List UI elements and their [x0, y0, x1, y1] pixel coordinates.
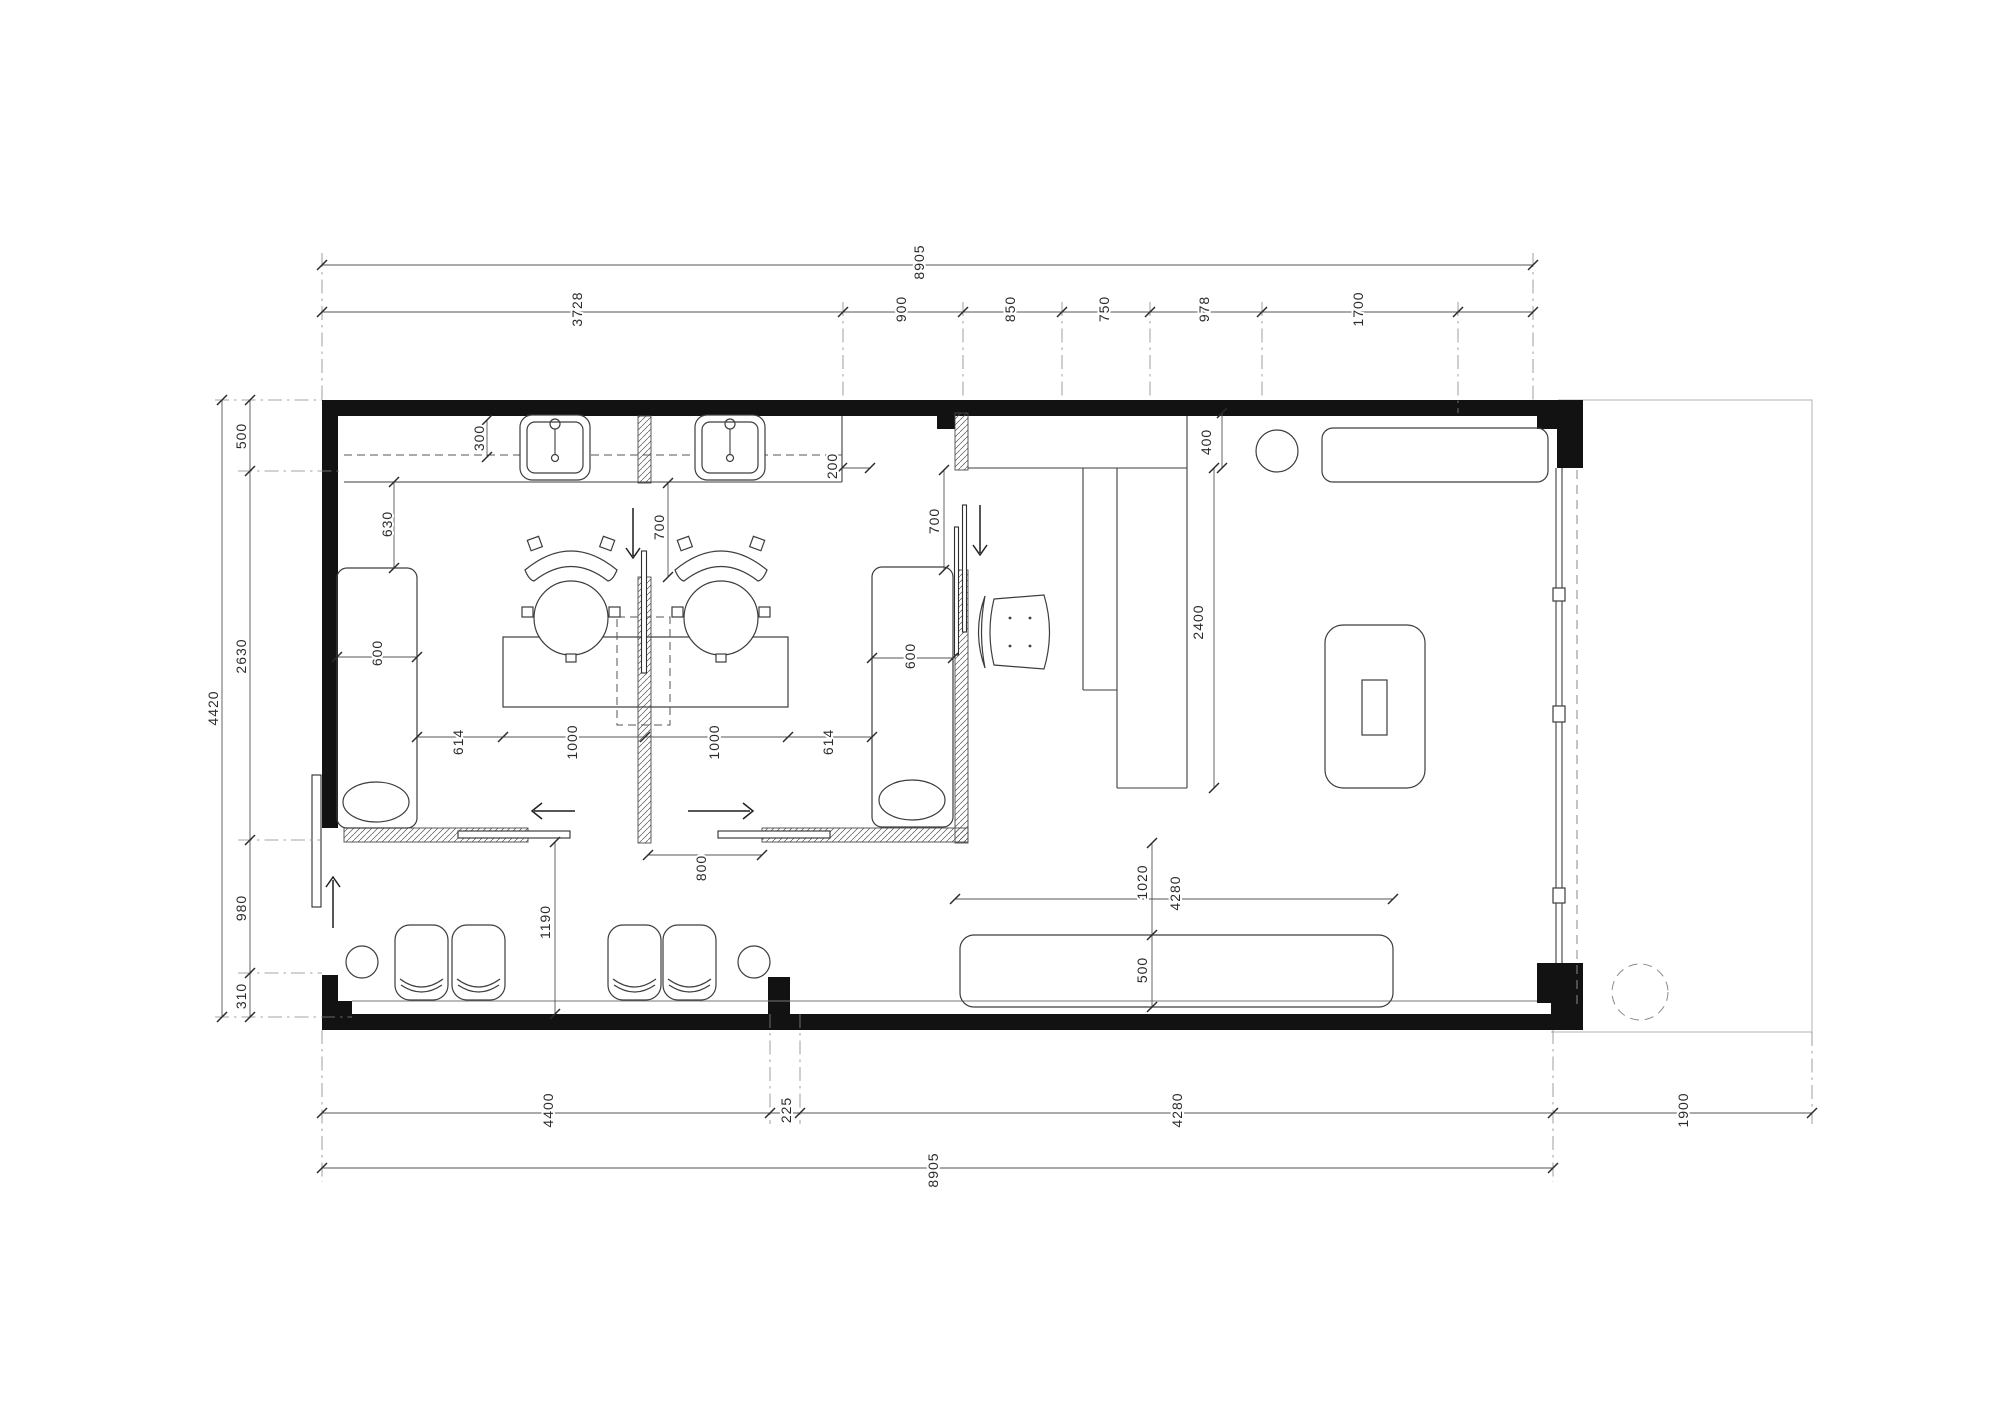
dim-label: 500 — [1134, 957, 1150, 983]
room2-south-arrow-icon — [688, 803, 753, 819]
dim-label: 300 — [471, 425, 487, 451]
entrance-arrow-icon — [326, 877, 340, 928]
treatment-bed-1 — [337, 568, 417, 828]
exterior-dashed-circle — [1612, 964, 1668, 1020]
dim-label: 614 — [820, 729, 836, 755]
bed-1-pillow — [343, 782, 409, 822]
sink-2 — [695, 415, 765, 480]
wall-bottom — [322, 1014, 1583, 1030]
room2-south-door — [718, 831, 830, 838]
glass-mullion — [1553, 706, 1565, 722]
dim-label: 850 — [1002, 296, 1018, 322]
exterior-terrace-outline — [1551, 400, 1812, 1032]
dim-label: 1700 — [1350, 291, 1366, 326]
partition-room2-right-top — [955, 413, 968, 470]
glass-wall — [1553, 468, 1577, 1008]
dim-label: 3728 — [569, 291, 585, 326]
dim-label: 1900 — [1675, 1092, 1691, 1127]
dim-label: 1190 — [537, 905, 553, 939]
dim-label: 4400 — [540, 1092, 556, 1127]
dim-label: 980 — [233, 895, 249, 921]
room1-south-arrow-icon — [532, 803, 575, 819]
dim-label: 900 — [893, 296, 909, 322]
client-chair-1 — [522, 536, 620, 662]
wall-bottom-right-corner — [1551, 963, 1583, 1030]
room1-north-door — [642, 551, 647, 673]
dim-label: 1000 — [564, 724, 580, 759]
dim-label: 750 — [1096, 296, 1112, 322]
dim-label: 500 — [233, 423, 249, 449]
partition-room-divider-top — [638, 416, 651, 483]
glass-mullion — [1553, 588, 1565, 601]
bench — [960, 935, 1393, 1007]
dim-label: 225 — [778, 1097, 794, 1123]
dim-label: 630 — [379, 511, 395, 537]
drawing-sheet: 8905372890085075097817004420500263098031… — [0, 0, 2000, 1413]
side-table — [346, 946, 378, 978]
side-table — [738, 946, 770, 978]
bed-2-pillow — [879, 780, 945, 820]
dim-label: 2630 — [233, 638, 249, 673]
dim-label: 1020 — [1134, 864, 1150, 899]
wall-cabinet — [1322, 428, 1548, 482]
dim-label: 800 — [693, 855, 709, 881]
dim-label: 700 — [926, 508, 942, 534]
coffee-table-tray — [1362, 680, 1387, 735]
dim-label: 200 — [824, 453, 840, 479]
entrance-sliding-door — [312, 775, 321, 907]
dim-label: 600 — [902, 643, 918, 669]
office-chair — [979, 595, 1050, 669]
glass-mullion — [1553, 888, 1565, 903]
partitions — [344, 413, 968, 843]
dim-label: 4280 — [1169, 1092, 1185, 1127]
treatment-bed-2 — [872, 567, 953, 827]
dim-label: 4280 — [1167, 875, 1183, 910]
floor-plan: 8905372890085075097817004420500263098031… — [0, 0, 2000, 1413]
stool — [1256, 430, 1298, 472]
room1-south-door — [458, 831, 570, 838]
room1-door-arrow-icon — [626, 508, 640, 558]
wall-left — [322, 400, 338, 828]
waiting-chair — [452, 925, 505, 1000]
dim-label: 978 — [1196, 296, 1212, 322]
client-chair-2 — [672, 536, 770, 662]
reception-desk — [1083, 416, 1187, 788]
wall-top-right-corner — [1557, 400, 1583, 468]
dim-label: 4420 — [205, 690, 221, 725]
waiting-chair — [395, 925, 448, 1000]
dim-label: 614 — [450, 729, 466, 755]
waiting-chair — [608, 925, 661, 1000]
room2-north-door-leaf — [955, 527, 959, 655]
sink-1 — [520, 415, 590, 480]
waiting-chair — [663, 925, 716, 1000]
wall-top-right-step — [1537, 416, 1560, 429]
room2-north-door-leaf — [963, 505, 967, 632]
furniture — [337, 428, 1548, 1007]
room2-door-arrow-icon — [973, 505, 987, 555]
wall-pier — [937, 416, 955, 429]
wall-top — [322, 400, 1583, 416]
dim-label: 400 — [1198, 429, 1214, 455]
dim-label: 2400 — [1190, 604, 1206, 639]
wall-column-stub — [768, 977, 790, 1014]
dim-label: 600 — [369, 640, 385, 666]
dim-label: 8905 — [925, 1152, 941, 1187]
coffee-table — [1325, 625, 1425, 788]
dim-label: 1000 — [706, 724, 722, 759]
dim-label: 8905 — [911, 244, 927, 279]
dimension-labels: 8905372890085075097817004420500263098031… — [205, 244, 1691, 1187]
dim-label: 310 — [233, 983, 249, 1009]
dim-label: 700 — [651, 514, 667, 540]
